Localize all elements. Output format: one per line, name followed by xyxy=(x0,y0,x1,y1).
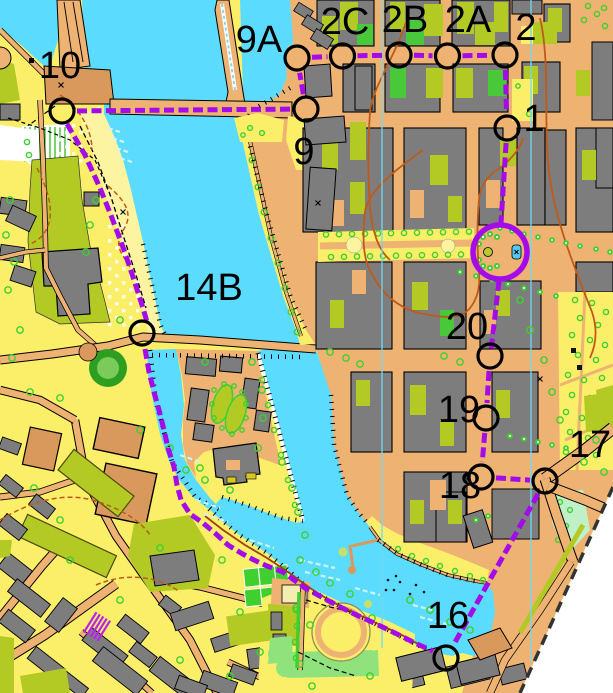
svg-text:16: 16 xyxy=(427,595,469,637)
svg-text:19: 19 xyxy=(438,389,480,431)
svg-text:9A: 9A xyxy=(236,19,283,61)
svg-text:17: 17 xyxy=(569,424,611,466)
svg-text:2B: 2B xyxy=(382,0,428,41)
svg-text:20: 20 xyxy=(446,306,488,348)
svg-text:10: 10 xyxy=(39,45,81,87)
svg-text:2C: 2C xyxy=(321,1,370,43)
svg-text:2: 2 xyxy=(515,7,536,49)
svg-text:9: 9 xyxy=(293,131,314,173)
svg-text:18: 18 xyxy=(439,465,481,507)
svg-text:1: 1 xyxy=(523,98,544,140)
svg-text:14B: 14B xyxy=(175,267,243,309)
svg-text:2A: 2A xyxy=(445,0,492,41)
